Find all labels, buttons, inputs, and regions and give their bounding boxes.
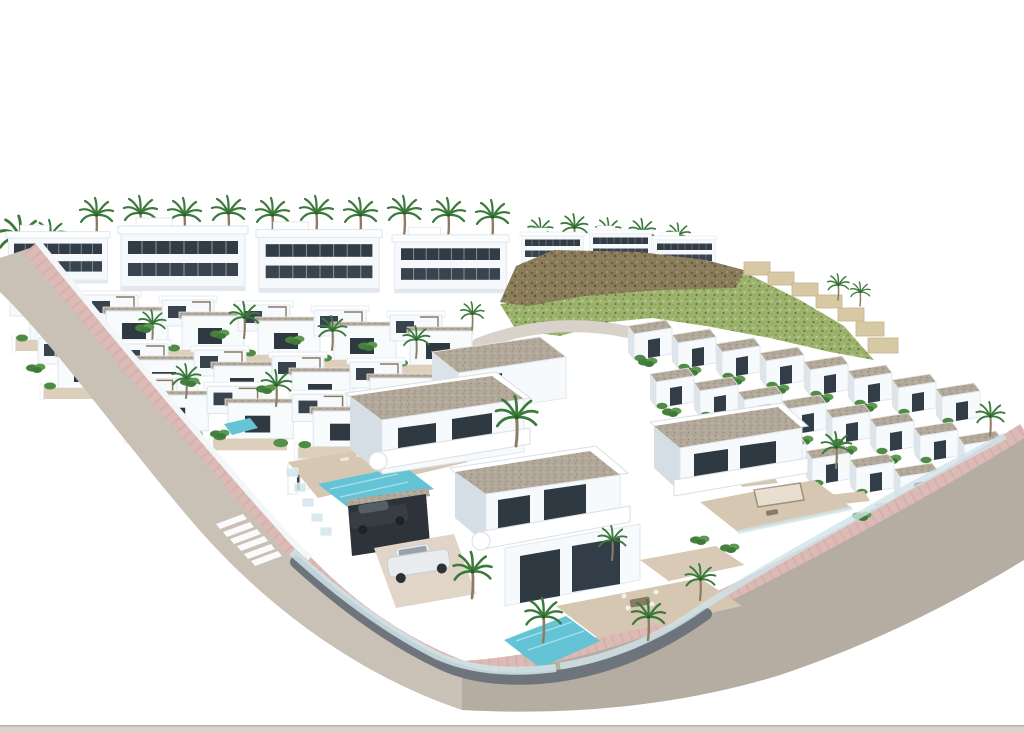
apartment-building bbox=[118, 218, 248, 291]
aerial-render-villa-development bbox=[0, 0, 1024, 732]
townhouse bbox=[806, 445, 850, 486]
townhouse bbox=[870, 413, 914, 454]
townhouse bbox=[892, 374, 936, 415]
apartment-building bbox=[256, 222, 382, 293]
townhouse bbox=[850, 454, 894, 495]
townhouse bbox=[760, 347, 804, 388]
ground-strip-edge bbox=[0, 725, 1024, 727]
townhouse bbox=[650, 368, 694, 409]
townhouse bbox=[848, 365, 892, 406]
townhouse bbox=[804, 356, 848, 397]
townhouse bbox=[628, 320, 672, 361]
glazing bbox=[520, 549, 560, 603]
townhouse bbox=[826, 404, 870, 445]
townhouse bbox=[716, 338, 760, 379]
townhouse bbox=[914, 422, 958, 463]
bottom-ground-strip bbox=[0, 727, 1024, 732]
townhouse bbox=[936, 383, 980, 424]
apartment-building bbox=[392, 228, 509, 294]
townhouse bbox=[672, 329, 716, 370]
